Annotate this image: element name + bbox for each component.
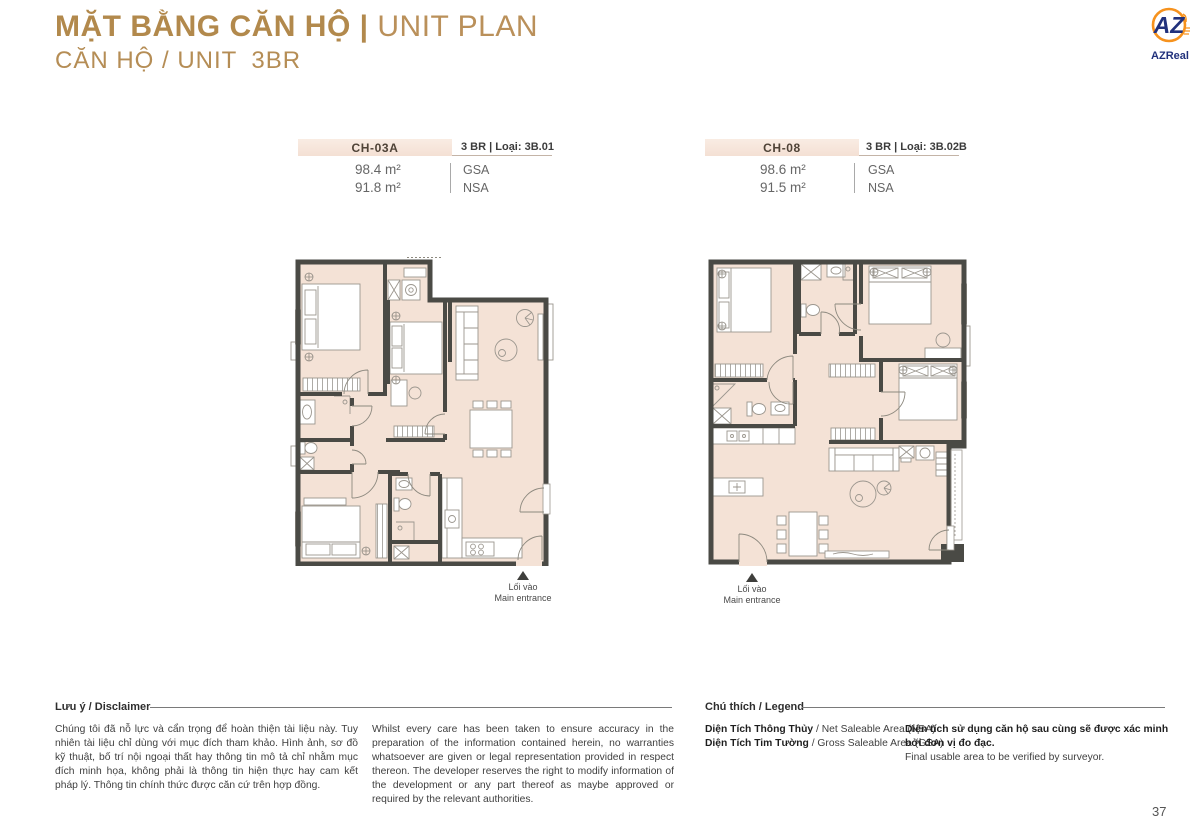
unit1-type: 3 BR | Loại: 3B.01 <box>461 141 554 153</box>
entrance-arrow-icon <box>746 573 758 582</box>
entrance-arrow-icon <box>517 571 529 580</box>
disclaimer-text-english: Whilst every care has been taken to ensu… <box>372 723 674 807</box>
unit2-nsa-label: NSA <box>868 179 894 197</box>
floor-plan-ch-08 <box>703 254 971 566</box>
unit2-nsa-value: 91.5 m² <box>760 179 806 197</box>
disclaimer-text-vietnamese: Chúng tôi đã nỗ lực và cẩn trọng để hoàn… <box>55 723 358 793</box>
unit2-underline <box>859 155 959 156</box>
unit1-code: CH-03A <box>352 141 399 155</box>
page-title-vietnamese: MẶT BẰNG CĂN HỘ | <box>55 10 369 43</box>
legend-item-nsa-bold: Diện Tích Thông Thủy <box>705 724 813 735</box>
unit2-entrance-vi: Lối vào <box>702 584 802 595</box>
legend-note-english: Final usable area to be verified by surv… <box>905 751 1170 765</box>
unit2-divider <box>854 163 855 193</box>
unit1-nsa-value: 91.8 m² <box>355 179 401 197</box>
unit1-entrance-marker: Lối vào Main entrance <box>473 571 573 604</box>
legend-rule <box>802 707 1165 708</box>
unit2-code: CH-08 <box>763 141 801 155</box>
company-logo: AZ AZReal <box>1143 4 1197 62</box>
legend-note-vietnamese: Diện tích sử dụng căn hộ sau cùng sẽ đượ… <box>905 723 1170 751</box>
floor-plan-ch-03a <box>290 254 554 566</box>
unit2-code-bar: CH-08 <box>705 139 859 156</box>
unit1-gsa-label: GSA <box>463 161 489 179</box>
unit2-gsa-label: GSA <box>868 161 894 179</box>
subtitle-label: CĂN HỘ / UNIT <box>55 47 237 74</box>
unit2-type: 3 BR | Loại: 3B.02B <box>866 141 967 153</box>
page-number: 37 <box>1152 804 1166 819</box>
disclaimer-rule <box>150 707 672 708</box>
unit1-code-bar: CH-03A <box>298 139 452 156</box>
unit1-entrance-vi: Lối vào <box>473 582 573 593</box>
legend-item-gsa-bold: Diện Tích Tim Tường <box>705 738 809 749</box>
unit1-entrance-en: Main entrance <box>473 593 573 604</box>
unit1-underline <box>452 155 552 156</box>
logo-monogram-icon: AZ <box>1143 4 1197 48</box>
legend-heading: Chú thích / Legend <box>705 701 804 713</box>
logo-name: AZReal <box>1143 50 1197 62</box>
page-title: MẶT BẰNG CĂN HỘ | UNIT PLAN <box>55 10 538 44</box>
unit1-nsa-label: NSA <box>463 179 489 197</box>
unit2-entrance-en: Main entrance <box>702 595 802 606</box>
unit2-entrance-marker: Lối vào Main entrance <box>702 573 802 606</box>
subtitle-unit-type: 3BR <box>251 47 301 74</box>
unit1-gsa-value: 98.4 m² <box>355 161 401 179</box>
page-title-english: UNIT PLAN <box>377 10 538 43</box>
disclaimer-heading: Lưu ý / Disclaimer <box>55 701 150 713</box>
unit1-divider <box>450 163 451 193</box>
legend-note: Diện tích sử dụng căn hộ sau cùng sẽ đượ… <box>905 723 1170 765</box>
page-subtitle: CĂN HỘ / UNIT3BR <box>55 47 301 75</box>
svg-text:AZ: AZ <box>1153 12 1186 38</box>
unit2-gsa-value: 98.6 m² <box>760 161 806 179</box>
